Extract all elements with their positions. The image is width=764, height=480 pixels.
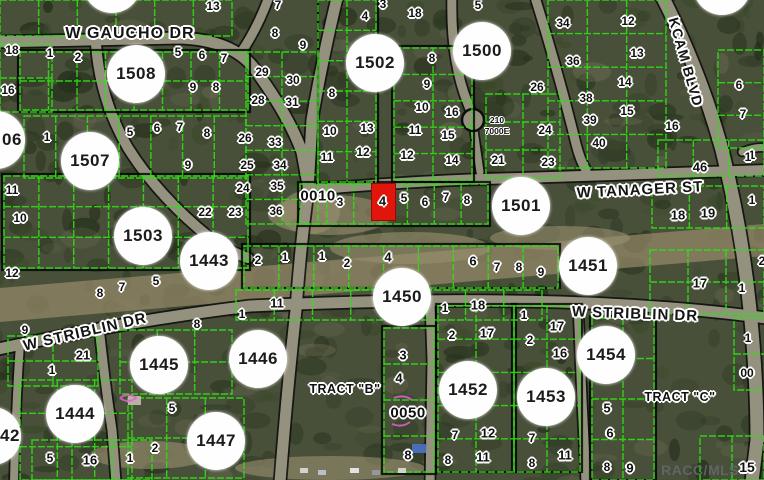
lot-number: 46 — [693, 160, 707, 175]
lot-number: 16 — [1, 83, 14, 97]
lot-number: 3 — [380, 0, 387, 11]
lot-number: 8 — [213, 80, 220, 94]
section-label: 1503 — [123, 226, 163, 246]
section-circle-1507: 1507 — [61, 132, 119, 190]
lot-number: 8 — [97, 286, 104, 300]
lot-number: 24 — [538, 123, 551, 137]
lot-number: 22 — [198, 205, 211, 219]
section-label: 1444 — [55, 404, 95, 424]
lot-number: 7 — [443, 190, 450, 204]
plat-number-label: 0010 — [300, 188, 335, 205]
lot-number: 1 — [239, 307, 246, 321]
lot-number: 9 — [626, 461, 633, 476]
lot-number: 26 — [238, 131, 251, 145]
lot-number: 9 — [185, 158, 192, 172]
section-circle-1451: 1451 — [559, 237, 617, 295]
lot-number: 11 — [321, 150, 334, 164]
lot-number: 1 — [745, 331, 752, 345]
lot-number: 8 — [464, 193, 471, 207]
lot-number: 15 — [739, 459, 755, 475]
lot-number: 9 — [424, 77, 431, 91]
lot-number: 8 — [272, 26, 279, 40]
lot-number: 8 — [604, 460, 611, 474]
lot-number: 8 — [204, 126, 211, 140]
section-circle-1500: 1500 — [453, 22, 511, 80]
lot-number: 1 — [442, 301, 449, 315]
lot-number: 8 — [529, 456, 536, 470]
lot-number: 10 — [13, 211, 26, 225]
plat-map: 4131816125679815678911101287529302831263… — [0, 0, 764, 480]
lot-number: 36 — [269, 204, 282, 218]
lot-number: 5 — [401, 191, 408, 205]
lot-number: 12 — [481, 426, 495, 441]
lot-number: 28 — [251, 93, 264, 107]
section-circle-1450: 1450 — [373, 268, 431, 326]
tract-label: TRACT "B" — [309, 382, 380, 396]
lot-number: 6 — [154, 121, 161, 135]
lot-number: 26 — [530, 80, 543, 94]
section-label: 1507 — [70, 151, 110, 171]
lot-number: 7 — [177, 120, 184, 134]
lot-number: 16 — [665, 119, 678, 133]
lot-number: 2 — [344, 256, 351, 270]
lot-number: 8 — [404, 448, 411, 463]
lot-number: 1 — [749, 193, 756, 207]
lot-number: 8 — [429, 51, 436, 65]
lot-number: 11 — [270, 296, 284, 311]
section-label: 1443 — [189, 251, 229, 271]
lot-number: 1 — [745, 150, 752, 164]
lot-number: 5 — [47, 451, 54, 465]
lot-number: 6 — [199, 48, 206, 62]
lot-number: 16 — [445, 105, 458, 119]
section-circle-1508: 1508 — [107, 45, 165, 103]
lot-number: 9 — [538, 265, 545, 279]
section-label: 1454 — [586, 345, 626, 365]
section-label: 1445 — [139, 355, 179, 375]
lot-number: 14 — [445, 153, 458, 167]
section-label: 1447 — [196, 431, 236, 451]
lot-number: 18 — [408, 6, 421, 20]
lot-number: 35 — [270, 179, 283, 193]
lot-number: 1 — [319, 249, 326, 263]
lot-number: 12 — [356, 145, 369, 159]
lot-number: 7 — [740, 107, 747, 121]
section-circle-1452: 1452 — [439, 361, 497, 419]
lot-number: 38 — [579, 91, 592, 105]
lot-number: 39 — [583, 113, 596, 127]
lot-number: 5 — [475, 0, 482, 12]
highlighted-lot-number: 4 — [379, 194, 386, 209]
lot-number: 15 — [441, 128, 454, 142]
lot-number: 12 — [400, 148, 413, 162]
lot-number: 34 — [273, 158, 286, 172]
lot-number: 7 — [221, 51, 228, 65]
lot-number: 18 — [471, 298, 485, 313]
tract-label: TRACT "C" — [644, 390, 715, 404]
section-label: 1501 — [501, 196, 541, 216]
lot-number: 9 — [22, 323, 29, 337]
lot-number: 23 — [228, 205, 241, 219]
watermark: RACC/MLS — [661, 462, 739, 478]
lot-number: 40 — [592, 136, 605, 150]
lot-number: 18 — [671, 208, 685, 223]
lot-number: 18 — [5, 43, 18, 57]
lot-number: 9 — [190, 80, 197, 94]
section-label: 1508 — [116, 64, 156, 84]
lot-number: 34 — [556, 16, 569, 30]
lot-number: 7 — [119, 280, 126, 294]
section-label: 1453 — [526, 387, 566, 407]
lot-number: 31 — [285, 95, 298, 109]
lot-number: 4 — [362, 9, 369, 23]
lot-number: 12 — [5, 266, 18, 280]
lot-number: 5 — [153, 274, 160, 288]
section-label: 06 — [2, 130, 22, 150]
lot-number: 2 — [75, 50, 82, 64]
section-circle-1503: 1503 — [114, 207, 172, 265]
lot-number: 11 — [409, 123, 422, 137]
section-circle-1502: 1502 — [346, 34, 404, 92]
lot-number: 1 — [47, 46, 54, 60]
lot-number: 17 — [693, 276, 707, 291]
lot-number: 11 — [558, 448, 572, 463]
lot-number: 2 — [255, 253, 262, 267]
lot-number: 00 — [740, 366, 753, 380]
section-label: 1446 — [238, 349, 278, 369]
lot-number: 8 — [516, 260, 523, 274]
lot-number: 13 — [206, 0, 219, 13]
plat-number-label: 210 — [490, 115, 504, 125]
lot-number: 9 — [300, 38, 307, 52]
section-circle-1454: 1454 — [577, 326, 635, 384]
section-label: 1450 — [382, 287, 422, 307]
lot-number: 21 — [76, 348, 90, 363]
lot-number: 7 — [529, 431, 536, 445]
lot-number: 11 — [476, 450, 490, 465]
lot-number: 4 — [384, 250, 391, 265]
lot-number: 1 — [739, 281, 746, 295]
lot-number: 5 — [175, 45, 182, 59]
plat-number-label: 7000E — [485, 126, 510, 136]
lot-number: 3 — [337, 195, 344, 209]
lot-number: 3 — [399, 348, 406, 363]
lot-number: 7 — [452, 428, 459, 442]
lot-number: 8 — [445, 453, 452, 467]
lot-number: 11 — [6, 183, 19, 197]
lot-number: 6 — [736, 78, 743, 92]
section-circle-1501: 1501 — [492, 177, 550, 235]
lot-number: 2 — [449, 328, 456, 342]
section-label: 42 — [0, 426, 20, 446]
lot-number: 1 — [282, 250, 289, 264]
section-label: 1502 — [355, 53, 395, 73]
lot-number: 4 — [395, 371, 402, 386]
lot-number: 16 — [83, 453, 97, 468]
section-circle-1445: 1445 — [130, 336, 188, 394]
lot-number: 5 — [603, 401, 610, 416]
lot-number: 8 — [329, 86, 336, 100]
lot-number: 16 — [553, 346, 567, 361]
lot-number: 10 — [415, 100, 428, 114]
lot-number: 7 — [494, 260, 501, 274]
section-circle-1447: 1447 — [187, 412, 245, 470]
section-label: 1451 — [568, 256, 608, 276]
lot-number: 5 — [127, 125, 134, 139]
lot-number: 1 — [49, 363, 56, 377]
lot-number: 8 — [194, 317, 201, 331]
lot-number: 30 — [286, 73, 299, 87]
lot-number: 6 — [469, 254, 476, 269]
section-circle-1443: 1443 — [180, 232, 238, 290]
lot-number: 1 — [127, 451, 134, 465]
lot-number: 14 — [618, 75, 631, 89]
lot-number: 7 — [275, 0, 282, 12]
lot-number: 2 — [759, 254, 764, 268]
lot-number: 12 — [621, 14, 634, 28]
lot-number: 2 — [152, 441, 159, 455]
lot-number: 13 — [630, 46, 643, 60]
section-circle-1446: 1446 — [229, 330, 287, 388]
lot-number: 2 — [527, 333, 534, 347]
section-circle-1453: 1453 — [517, 368, 575, 426]
lot-number: 5 — [169, 401, 176, 415]
lot-number: 15 — [620, 104, 633, 118]
lot-number: 1 — [44, 130, 51, 144]
street-label: W GAUCHO DR — [65, 25, 194, 43]
lot-number: 17 — [480, 326, 494, 341]
lot-number: 19 — [701, 206, 715, 221]
lot-number: 24 — [236, 181, 249, 195]
lot-number: 17 — [550, 319, 564, 334]
plat-number-label: 0050 — [390, 405, 425, 422]
lot-number: 13 — [360, 121, 373, 135]
lot-number: 1 — [521, 308, 528, 322]
lot-number: 25 — [240, 158, 253, 172]
lot-number: 29 — [255, 65, 268, 79]
section-label: 1452 — [448, 380, 488, 400]
lot-number: 33 — [268, 135, 281, 149]
section-circle-1444: 1444 — [46, 385, 104, 443]
lot-number: 21 — [491, 153, 504, 167]
lot-number: 23 — [541, 155, 554, 169]
lot-number: 10 — [323, 124, 336, 138]
lot-number: 36 — [566, 54, 579, 68]
lot-number: 6 — [422, 195, 429, 209]
section-label: 1500 — [462, 41, 502, 61]
lot-number: 6 — [606, 426, 613, 441]
